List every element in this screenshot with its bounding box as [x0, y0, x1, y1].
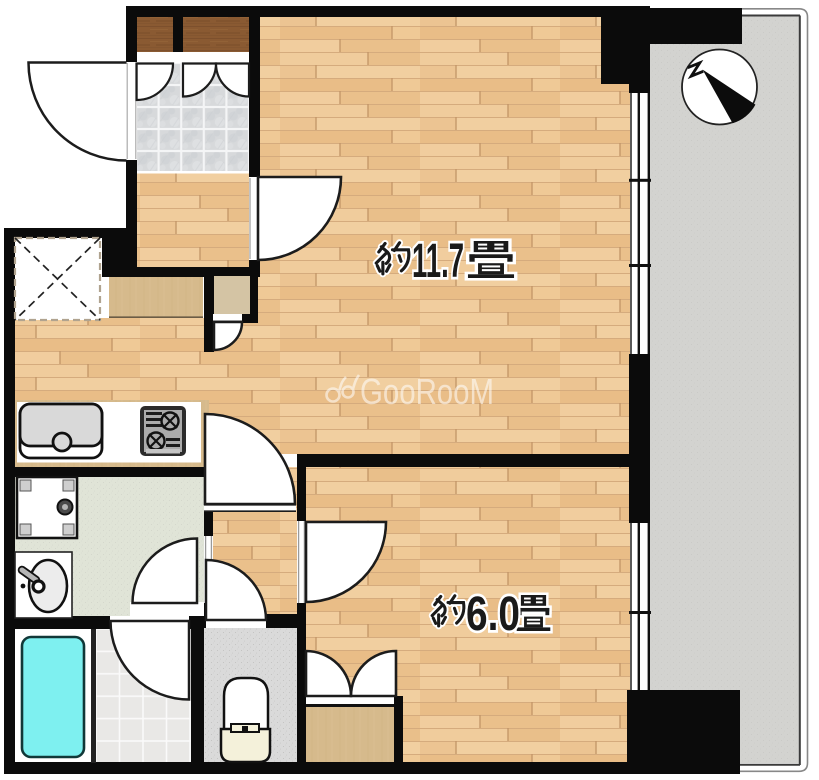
svg-text:GooRooM: GooRooM — [360, 371, 494, 412]
svg-text:6.0: 6.0 — [466, 588, 520, 641]
svg-text:11.7: 11.7 — [412, 235, 464, 288]
